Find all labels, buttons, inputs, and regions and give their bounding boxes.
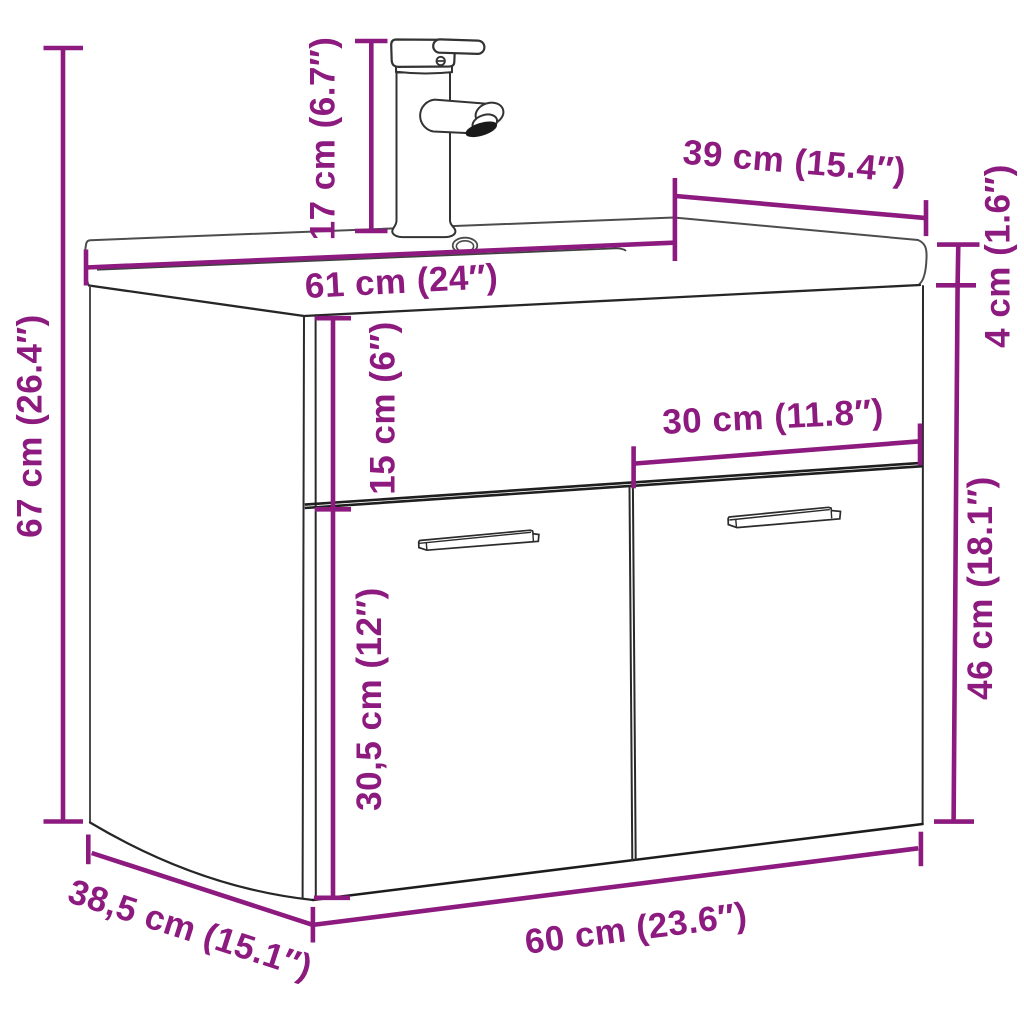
svg-text:4 cm (1.6″): 4 cm (1.6″) xyxy=(979,164,1018,348)
svg-text:15 cm (6″): 15 cm (6″) xyxy=(364,321,403,495)
svg-text:30,5 cm (12″): 30,5 cm (12″) xyxy=(350,587,389,811)
svg-text:67 cm (26.4″): 67 cm (26.4″) xyxy=(11,314,50,538)
svg-text:17 cm (6.7″): 17 cm (6.7″) xyxy=(304,37,343,241)
svg-text:46 cm (18.1″): 46 cm (18.1″) xyxy=(961,476,1000,700)
